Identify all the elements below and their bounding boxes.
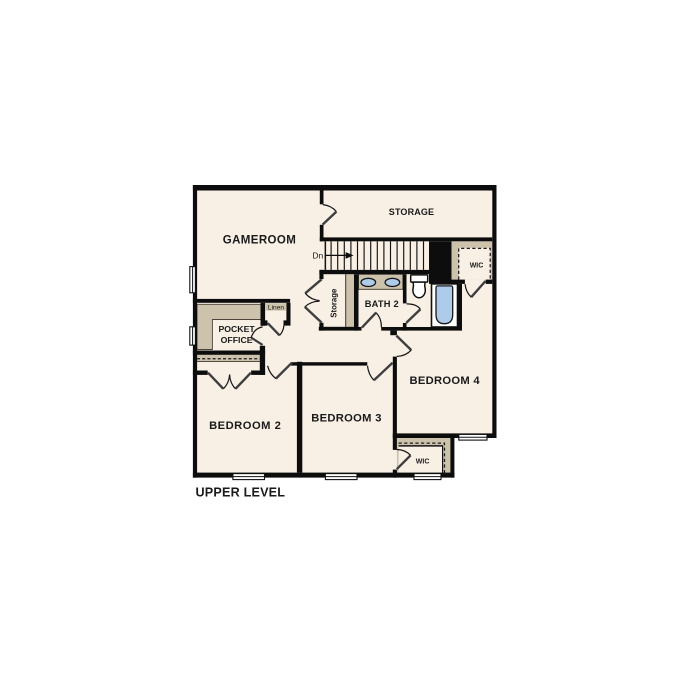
svg-text:Linen: Linen <box>268 305 284 312</box>
svg-text:WIC: WIC <box>470 262 484 269</box>
svg-text:BEDROOM 4: BEDROOM 4 <box>409 375 480 387</box>
svg-text:BEDROOM 3: BEDROOM 3 <box>311 412 381 424</box>
svg-text:GAMEROOM: GAMEROOM <box>223 234 296 246</box>
svg-text:POCKET: POCKET <box>218 324 255 334</box>
svg-text:WIC: WIC <box>416 458 430 465</box>
svg-text:OFFICE: OFFICE <box>221 335 253 345</box>
svg-text:UPPER LEVEL: UPPER LEVEL <box>196 485 286 499</box>
svg-text:BEDROOM 2: BEDROOM 2 <box>209 420 281 432</box>
svg-text:Dn: Dn <box>312 251 323 261</box>
svg-text:Storage: Storage <box>330 288 339 318</box>
svg-text:BATH 2: BATH 2 <box>365 299 399 309</box>
svg-text:STORAGE: STORAGE <box>389 207 434 217</box>
